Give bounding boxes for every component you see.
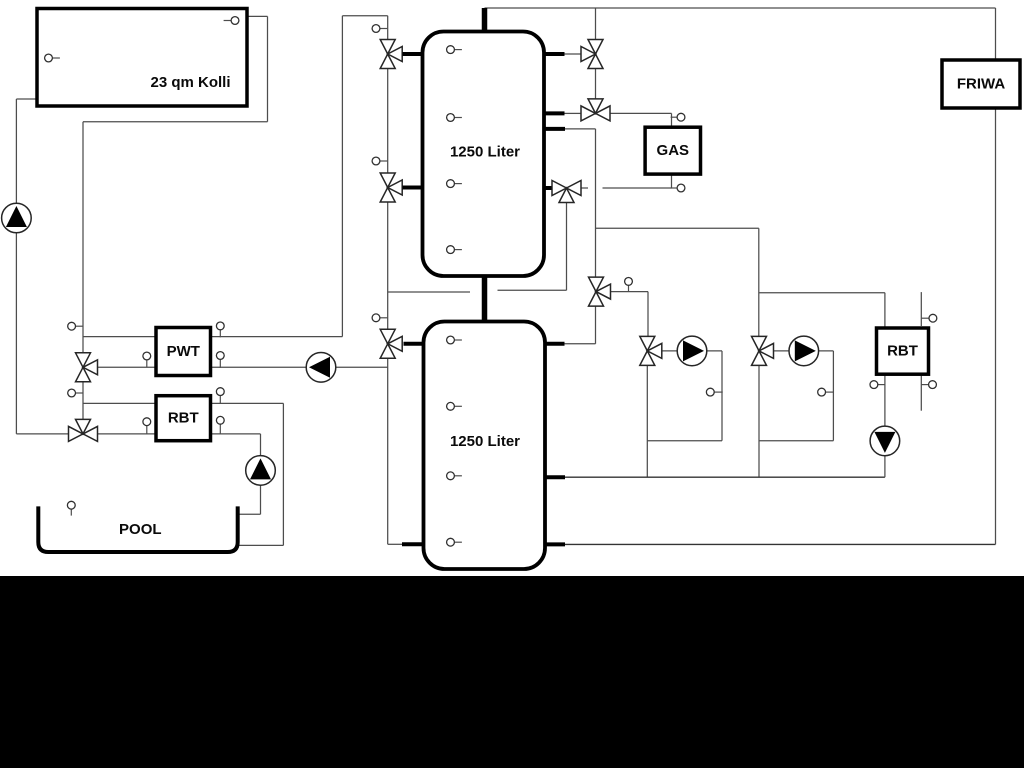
- svg-text:PWT: PWT: [167, 343, 200, 360]
- svg-text:23 qm Kolli: 23 qm Kolli: [150, 74, 230, 91]
- svg-text:1250 Liter: 1250 Liter: [450, 144, 520, 161]
- svg-text:POOL: POOL: [119, 521, 162, 538]
- svg-text:RBT: RBT: [168, 410, 199, 427]
- svg-text:GAS: GAS: [657, 142, 690, 159]
- svg-text:1250 Liter: 1250 Liter: [450, 433, 520, 450]
- svg-text:RBT: RBT: [887, 343, 918, 360]
- svg-text:FRIWA: FRIWA: [957, 76, 1005, 93]
